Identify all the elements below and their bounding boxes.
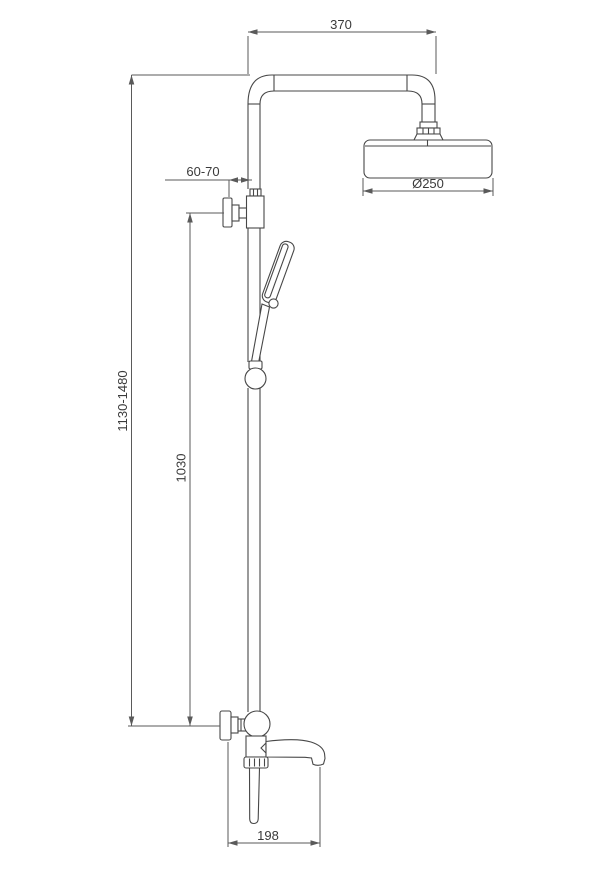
dim-head-diameter: Ø250 [363,176,493,196]
dim-label-riser-height: 1030 [174,454,189,483]
shower-system-drawing: 370 1130-1480 1030 60-70 Ø250 [0,0,603,879]
dim-riser-height: 1030 [174,213,225,726]
dim-label-head-diameter: Ø250 [412,176,444,191]
slider-ring [245,361,266,389]
head-connector-nut [414,122,443,140]
dim-label-wall-clearance: 60-70 [186,164,219,179]
diverter-knob [244,711,270,737]
dim-arm-length: 370 [248,17,436,74]
mixer-handle [250,768,260,824]
hand-shower-hook [269,299,278,308]
dim-label-spout-reach: 198 [257,828,279,843]
dim-overall-height: 1130-1480 [115,75,250,726]
shower-arm [248,75,435,122]
hand-shower [252,240,296,362]
tub-spout [261,740,325,766]
dim-wall-clearance: 60-70 [165,164,252,197]
technical-drawing-page: 370 1130-1480 1030 60-70 Ø250 [0,0,603,879]
dim-label-overall-height: 1130-1480 [115,370,130,431]
dim-label-arm-length: 370 [330,17,352,32]
rain-shower-head [364,140,492,178]
